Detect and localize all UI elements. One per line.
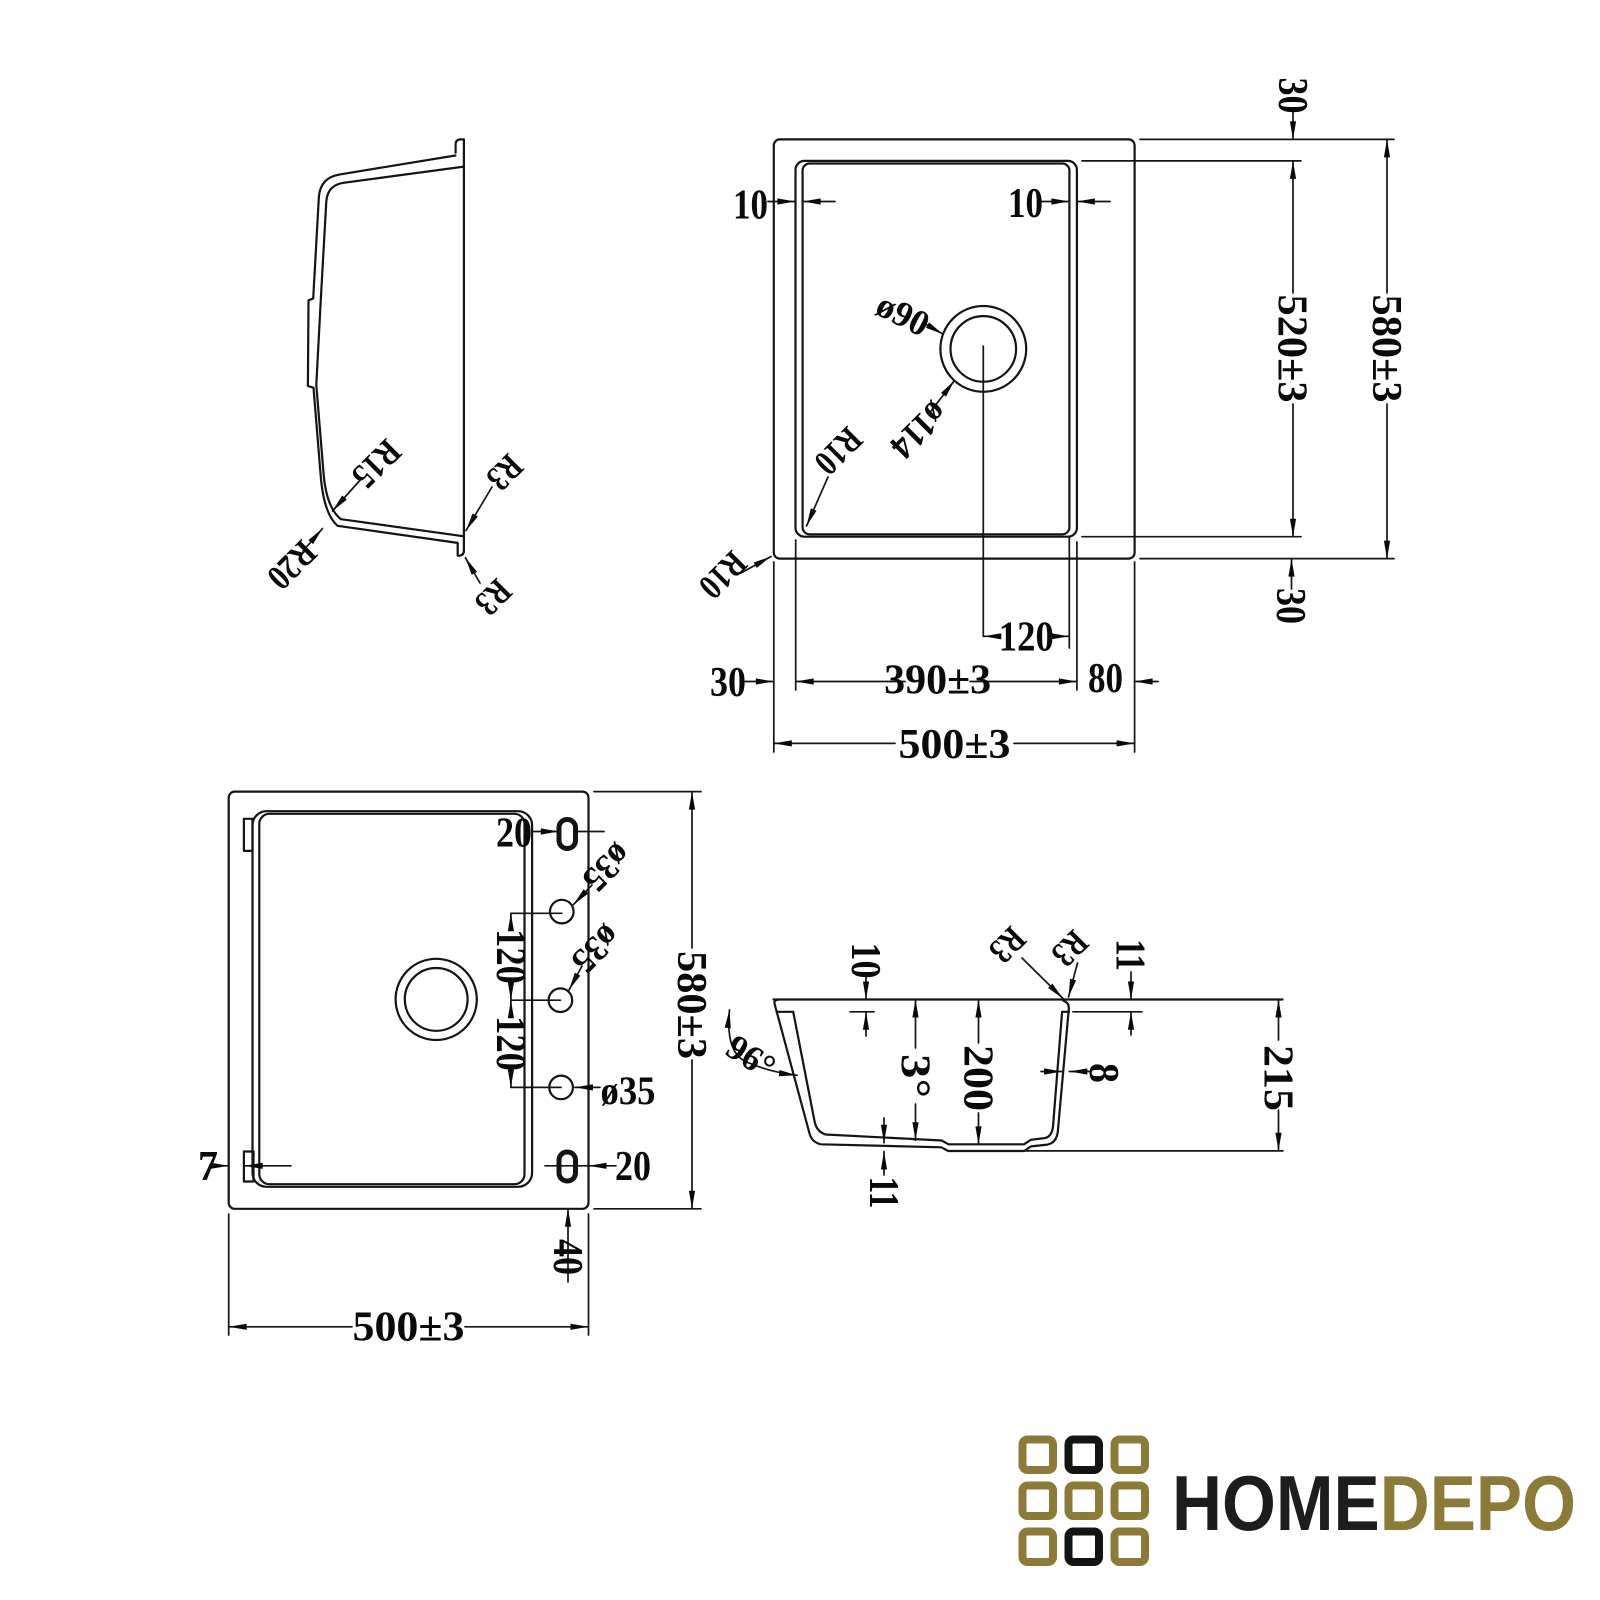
svg-text:40: 40	[544, 1239, 590, 1275]
svg-text:500±3: 500±3	[899, 722, 1011, 768]
svg-text:500±3: 500±3	[353, 1304, 465, 1350]
svg-text:120: 120	[487, 1016, 533, 1071]
svg-text:200: 200	[955, 1045, 1001, 1111]
svg-text:7: 7	[198, 1144, 218, 1190]
svg-text:11: 11	[1107, 939, 1153, 971]
svg-text:80: 80	[1088, 656, 1123, 702]
svg-text:30: 30	[1269, 78, 1315, 114]
svg-text:390±3: 390±3	[884, 657, 991, 703]
svg-text:580±3: 580±3	[1363, 295, 1409, 403]
svg-text:HOMEDEPO: HOMEDEPO	[1172, 1459, 1576, 1547]
svg-text:10: 10	[733, 182, 768, 228]
svg-text:520±3: 520±3	[1269, 295, 1315, 403]
svg-text:20: 20	[496, 811, 532, 857]
svg-text:8: 8	[1080, 1063, 1126, 1083]
svg-text:215: 215	[1255, 1045, 1301, 1111]
svg-text:30: 30	[1267, 588, 1313, 624]
svg-text:30: 30	[710, 660, 746, 706]
svg-text:ø35: ø35	[601, 1068, 656, 1113]
svg-text:10: 10	[842, 943, 888, 979]
svg-text:3°: 3°	[892, 1054, 938, 1098]
svg-text:20: 20	[615, 1144, 651, 1190]
svg-text:120: 120	[487, 929, 533, 984]
svg-text:580±3: 580±3	[668, 951, 714, 1059]
svg-text:11: 11	[860, 1177, 906, 1209]
svg-text:10: 10	[1008, 181, 1043, 227]
svg-text:120: 120	[999, 614, 1054, 660]
